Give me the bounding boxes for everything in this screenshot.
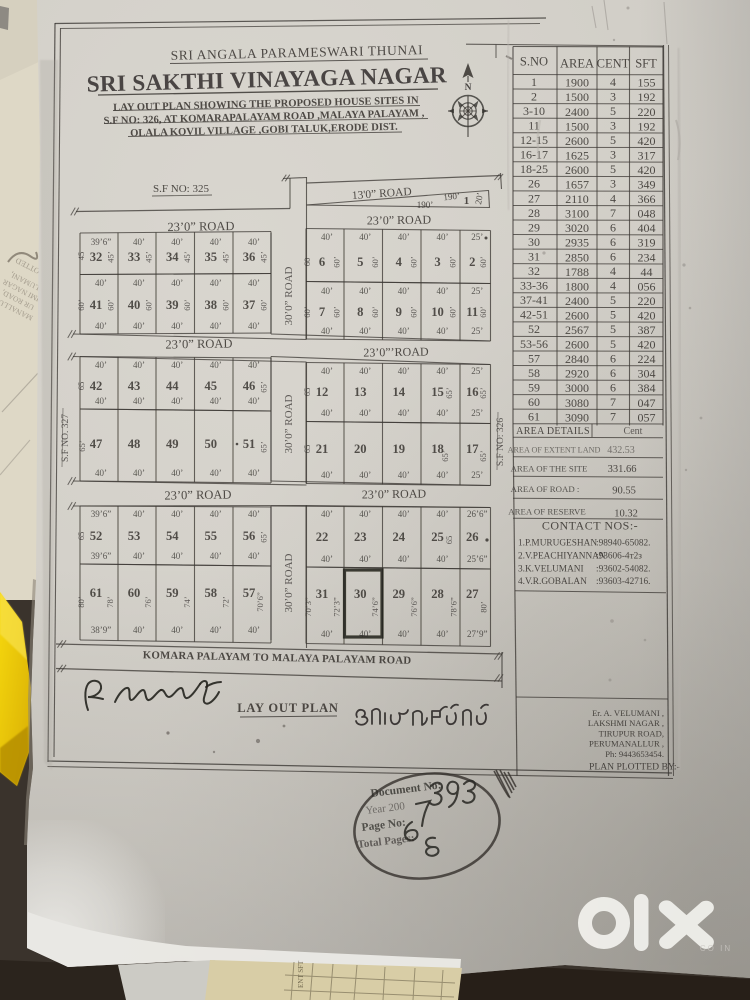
svg-text:2600: 2600 bbox=[565, 134, 589, 148]
svg-text:39’6”: 39’6” bbox=[91, 509, 112, 519]
svg-text:40’: 40’ bbox=[437, 629, 449, 639]
svg-text:60’: 60’ bbox=[409, 306, 419, 318]
svg-text:220: 220 bbox=[638, 105, 656, 119]
svg-text:65’: 65’ bbox=[478, 387, 488, 399]
svg-text:72’: 72’ bbox=[221, 596, 231, 608]
svg-text:27: 27 bbox=[466, 587, 479, 601]
svg-text:2600: 2600 bbox=[565, 338, 589, 352]
svg-text:40’: 40’ bbox=[210, 468, 222, 478]
svg-text:1788: 1788 bbox=[565, 265, 589, 279]
svg-text:304: 304 bbox=[638, 367, 656, 381]
svg-text:40’: 40’ bbox=[321, 554, 333, 564]
svg-text:AREA OF ROAD :: AREA OF ROAD : bbox=[511, 484, 580, 494]
svg-text:65: 65 bbox=[444, 536, 454, 545]
svg-text:4: 4 bbox=[610, 279, 616, 293]
svg-text:319: 319 bbox=[638, 236, 656, 250]
svg-text:1625: 1625 bbox=[565, 148, 589, 162]
svg-text:25’6”: 25’6” bbox=[467, 554, 488, 564]
svg-text:40’: 40’ bbox=[248, 468, 260, 478]
svg-text:5: 5 bbox=[357, 255, 363, 269]
svg-text:34: 34 bbox=[166, 250, 179, 264]
svg-text::98940-65082.: :98940-65082. bbox=[596, 539, 651, 549]
svg-text:420: 420 bbox=[638, 338, 656, 352]
svg-text:38’9”: 38’9” bbox=[91, 625, 112, 635]
svg-text:2.V.PEACHIYANNAN: 2.V.PEACHIYANNAN bbox=[518, 552, 606, 562]
svg-text:65’: 65’ bbox=[77, 440, 87, 452]
svg-text:40’: 40’ bbox=[210, 278, 222, 288]
svg-text:7: 7 bbox=[610, 206, 616, 220]
svg-text:6: 6 bbox=[610, 366, 616, 380]
svg-text:20: 20 bbox=[354, 442, 367, 456]
svg-text:40’: 40’ bbox=[398, 326, 410, 336]
svg-text:60’: 60’ bbox=[332, 306, 342, 318]
svg-text:40’: 40’ bbox=[398, 629, 410, 639]
svg-text:25: 25 bbox=[431, 530, 444, 544]
svg-text:45’: 45’ bbox=[259, 251, 269, 263]
svg-text:11: 11 bbox=[466, 305, 478, 319]
svg-text:2850: 2850 bbox=[565, 250, 589, 264]
svg-text:40’: 40’ bbox=[133, 551, 145, 561]
svg-text:60’: 60’ bbox=[370, 306, 380, 318]
svg-text:1800: 1800 bbox=[565, 279, 589, 293]
svg-text:65’: 65’ bbox=[440, 450, 450, 462]
svg-text:56: 56 bbox=[243, 529, 256, 543]
svg-text:1900: 1900 bbox=[565, 76, 589, 90]
svg-text:60’: 60’ bbox=[478, 306, 488, 318]
svg-text:Cent: Cent bbox=[624, 426, 643, 437]
svg-text:42-51: 42-51 bbox=[520, 308, 548, 322]
svg-text:048: 048 bbox=[638, 207, 656, 221]
svg-text:40’: 40’ bbox=[171, 468, 183, 478]
svg-text:40’: 40’ bbox=[437, 286, 449, 296]
svg-text:76’6”: 76’6” bbox=[409, 597, 419, 617]
svg-text:40’: 40’ bbox=[171, 321, 183, 331]
svg-text:30’0” ROAD: 30’0” ROAD bbox=[283, 266, 295, 325]
svg-text:40’: 40’ bbox=[321, 232, 333, 242]
svg-text:45’: 45’ bbox=[221, 251, 231, 263]
svg-text:331.66: 331.66 bbox=[608, 464, 637, 475]
svg-text:220: 220 bbox=[638, 294, 656, 308]
svg-text:65’: 65’ bbox=[478, 450, 488, 462]
svg-text:23’0” ROAD: 23’0” ROAD bbox=[165, 336, 232, 351]
svg-text:TIRUPUR ROAD,: TIRUPUR ROAD, bbox=[599, 728, 664, 738]
svg-text:5: 5 bbox=[610, 322, 616, 336]
svg-text:70’3”: 70’3” bbox=[303, 597, 313, 617]
svg-text:7: 7 bbox=[610, 410, 616, 424]
svg-text:29: 29 bbox=[528, 220, 540, 234]
svg-text:3-10: 3-10 bbox=[523, 104, 545, 118]
svg-text:190’: 190’ bbox=[443, 191, 460, 203]
svg-text:32: 32 bbox=[528, 264, 540, 278]
svg-text:60’: 60’ bbox=[332, 256, 342, 268]
svg-text:40’: 40’ bbox=[248, 396, 260, 406]
svg-text:40’: 40’ bbox=[359, 232, 371, 242]
svg-text:40’: 40’ bbox=[321, 326, 333, 336]
svg-text:40’: 40’ bbox=[133, 468, 145, 478]
svg-text:3100: 3100 bbox=[565, 207, 589, 221]
svg-text:30: 30 bbox=[354, 587, 367, 601]
svg-text:2600: 2600 bbox=[565, 308, 589, 322]
svg-text:CENT: CENT bbox=[597, 57, 630, 71]
svg-text:47: 47 bbox=[90, 437, 103, 451]
svg-text:234: 234 bbox=[638, 250, 656, 264]
svg-text:1.P.MURUGESHAN: 1.P.MURUGESHAN bbox=[518, 539, 597, 549]
svg-text:74’6”: 74’6” bbox=[370, 597, 380, 617]
svg-text:1: 1 bbox=[464, 195, 470, 207]
svg-text:155: 155 bbox=[638, 76, 656, 90]
svg-text:2920: 2920 bbox=[565, 367, 589, 381]
svg-text:60’: 60’ bbox=[221, 299, 231, 311]
svg-text:23’0” ROAD: 23’0” ROAD bbox=[164, 487, 231, 502]
svg-text:44: 44 bbox=[641, 265, 653, 279]
svg-text:60’: 60’ bbox=[448, 306, 458, 318]
svg-text:25’: 25’ bbox=[471, 232, 483, 242]
svg-text:65: 65 bbox=[76, 382, 86, 391]
svg-text:40’: 40’ bbox=[171, 360, 183, 370]
svg-text:28: 28 bbox=[431, 587, 444, 601]
svg-text:40’: 40’ bbox=[398, 470, 410, 480]
svg-text:384: 384 bbox=[638, 381, 656, 395]
svg-text:29: 29 bbox=[392, 587, 405, 601]
svg-text:40’: 40’ bbox=[248, 321, 260, 331]
svg-text:3: 3 bbox=[610, 89, 616, 103]
svg-text:60: 60 bbox=[128, 586, 141, 600]
svg-text:30’0” ROAD: 30’0” ROAD bbox=[283, 394, 295, 453]
svg-text:60: 60 bbox=[528, 395, 540, 409]
svg-text:3: 3 bbox=[610, 148, 616, 162]
svg-text:40’: 40’ bbox=[133, 321, 145, 331]
svg-text:16: 16 bbox=[466, 385, 479, 399]
svg-text:25’: 25’ bbox=[471, 470, 483, 480]
svg-text:40’: 40’ bbox=[359, 326, 371, 336]
svg-text:Ph: 9443653454.: Ph: 9443653454. bbox=[605, 749, 664, 759]
svg-text:1500: 1500 bbox=[565, 90, 589, 104]
svg-text:366: 366 bbox=[638, 192, 656, 206]
svg-text:50: 50 bbox=[204, 437, 217, 451]
svg-text:40’: 40’ bbox=[171, 551, 183, 561]
svg-text:6: 6 bbox=[319, 255, 325, 269]
svg-text:190’: 190’ bbox=[417, 200, 434, 210]
svg-text:4: 4 bbox=[610, 75, 616, 89]
svg-text:78’6”: 78’6” bbox=[449, 597, 459, 617]
svg-text:57: 57 bbox=[528, 351, 540, 365]
svg-text:40’: 40’ bbox=[171, 237, 183, 247]
svg-text:1657: 1657 bbox=[565, 178, 589, 192]
svg-text:40’: 40’ bbox=[248, 278, 260, 288]
svg-text:40’: 40’ bbox=[133, 237, 145, 247]
svg-text:58: 58 bbox=[204, 586, 217, 600]
svg-text:61: 61 bbox=[528, 410, 540, 424]
svg-text:AREA DETAILS: AREA DETAILS bbox=[516, 426, 590, 437]
svg-text:3000: 3000 bbox=[565, 381, 589, 395]
svg-text:37: 37 bbox=[243, 298, 256, 312]
svg-text:3: 3 bbox=[610, 177, 616, 191]
svg-text:24: 24 bbox=[392, 530, 405, 544]
svg-text:6: 6 bbox=[610, 220, 616, 234]
svg-text:23’0” ROAD: 23’0” ROAD bbox=[362, 486, 427, 501]
svg-text:46: 46 bbox=[243, 379, 256, 393]
svg-text:40’: 40’ bbox=[359, 408, 371, 418]
svg-text:27: 27 bbox=[528, 191, 540, 205]
svg-text:ENT SFT: ENT SFT bbox=[297, 960, 305, 988]
svg-text:192: 192 bbox=[638, 119, 656, 133]
svg-text:76’: 76’ bbox=[143, 596, 153, 608]
svg-text:28: 28 bbox=[528, 206, 540, 220]
svg-text:5: 5 bbox=[610, 337, 616, 351]
svg-text:33-36: 33-36 bbox=[520, 279, 548, 293]
svg-text:74’: 74’ bbox=[182, 596, 192, 608]
svg-text:9: 9 bbox=[396, 305, 402, 319]
svg-text:17: 17 bbox=[466, 442, 479, 456]
svg-text:45’: 45’ bbox=[144, 251, 154, 263]
svg-text:3090: 3090 bbox=[565, 410, 589, 424]
svg-text:3080: 3080 bbox=[565, 396, 589, 410]
svg-text:2110: 2110 bbox=[565, 192, 589, 206]
svg-text:4: 4 bbox=[610, 264, 616, 278]
svg-text:40’: 40’ bbox=[321, 408, 333, 418]
svg-text:5: 5 bbox=[610, 133, 616, 147]
svg-text:387: 387 bbox=[638, 323, 656, 337]
svg-text:40’: 40’ bbox=[398, 509, 410, 519]
svg-text:31: 31 bbox=[316, 587, 329, 601]
svg-text:6: 6 bbox=[610, 351, 616, 365]
svg-text:40’: 40’ bbox=[210, 625, 222, 635]
svg-text:61: 61 bbox=[90, 586, 103, 600]
svg-text:2567: 2567 bbox=[565, 323, 589, 337]
svg-text:317: 317 bbox=[638, 148, 656, 162]
svg-text:78’: 78’ bbox=[105, 596, 115, 608]
svg-text:12: 12 bbox=[316, 385, 329, 399]
svg-text:45: 45 bbox=[76, 252, 86, 261]
svg-text:40’: 40’ bbox=[248, 551, 260, 561]
svg-text:40’: 40’ bbox=[398, 366, 410, 376]
svg-text:2935: 2935 bbox=[565, 236, 589, 250]
svg-text:65’: 65’ bbox=[444, 387, 454, 399]
svg-text:20’: 20’ bbox=[473, 192, 485, 206]
svg-text:40’: 40’ bbox=[359, 470, 371, 480]
svg-text:40’: 40’ bbox=[248, 360, 260, 370]
svg-text:60’: 60’ bbox=[370, 256, 380, 268]
svg-text:40’: 40’ bbox=[321, 629, 333, 639]
svg-text:54: 54 bbox=[166, 529, 179, 543]
svg-text:2: 2 bbox=[469, 255, 475, 269]
svg-text:30’0” ROAD: 30’0” ROAD bbox=[283, 553, 295, 612]
svg-text:40’: 40’ bbox=[133, 396, 145, 406]
svg-text:40’: 40’ bbox=[171, 278, 183, 288]
svg-text:32: 32 bbox=[90, 250, 103, 264]
svg-text:43: 43 bbox=[128, 379, 141, 393]
svg-text:40’: 40’ bbox=[95, 321, 107, 331]
svg-text:40’: 40’ bbox=[321, 470, 333, 480]
svg-text:LAKSHMI NAGAR ,: LAKSHMI NAGAR , bbox=[588, 718, 664, 728]
svg-text:51: 51 bbox=[243, 437, 256, 451]
svg-text::93603-42716.: :93603-42716. bbox=[596, 577, 651, 587]
svg-text:6: 6 bbox=[610, 380, 616, 394]
svg-text:056: 056 bbox=[638, 279, 656, 293]
svg-text:16-17: 16-17 bbox=[520, 148, 548, 162]
svg-text:420: 420 bbox=[638, 308, 656, 322]
svg-text:60’: 60’ bbox=[182, 299, 192, 311]
svg-text:AREA OF EXTENT LAND: AREA OF EXTENT LAND bbox=[508, 446, 601, 455]
svg-text:40’: 40’ bbox=[95, 468, 107, 478]
svg-text:40’: 40’ bbox=[210, 360, 222, 370]
svg-text:40’: 40’ bbox=[398, 232, 410, 242]
svg-text:349: 349 bbox=[638, 178, 656, 192]
svg-text:6: 6 bbox=[610, 235, 616, 249]
svg-text:25’: 25’ bbox=[471, 366, 483, 376]
svg-text:30: 30 bbox=[528, 235, 540, 249]
svg-text:5: 5 bbox=[610, 293, 616, 307]
svg-text:42: 42 bbox=[90, 379, 103, 393]
svg-text:90.55: 90.55 bbox=[612, 486, 636, 497]
svg-text:5: 5 bbox=[610, 162, 616, 176]
svg-text:23’0” ROAD: 23’0” ROAD bbox=[367, 212, 432, 227]
svg-text:12-15: 12-15 bbox=[520, 133, 548, 147]
svg-text:PERUMANALLUR ,: PERUMANALLUR , bbox=[589, 739, 664, 749]
svg-text:1500: 1500 bbox=[565, 119, 589, 133]
svg-text:40’: 40’ bbox=[133, 625, 145, 635]
svg-text:3: 3 bbox=[434, 255, 440, 269]
svg-text:39: 39 bbox=[166, 298, 179, 312]
svg-text:40’: 40’ bbox=[359, 509, 371, 519]
svg-text:40’: 40’ bbox=[437, 554, 449, 564]
svg-text:65’: 65’ bbox=[259, 531, 269, 543]
svg-text:25’: 25’ bbox=[471, 326, 483, 336]
svg-text:65’: 65’ bbox=[259, 381, 269, 393]
svg-text:40’: 40’ bbox=[398, 286, 410, 296]
svg-text:40’: 40’ bbox=[133, 278, 145, 288]
svg-text:LAY OUT PLAN: LAY OUT PLAN bbox=[237, 701, 339, 715]
svg-text:48: 48 bbox=[128, 437, 141, 451]
svg-text:65’: 65’ bbox=[259, 441, 269, 453]
svg-text:40’: 40’ bbox=[95, 360, 107, 370]
svg-text:40’: 40’ bbox=[437, 509, 449, 519]
svg-text:25’: 25’ bbox=[471, 408, 483, 418]
svg-text:60’: 60’ bbox=[76, 299, 86, 311]
svg-text:40’: 40’ bbox=[248, 237, 260, 247]
svg-text:224: 224 bbox=[638, 352, 656, 366]
svg-text:40’: 40’ bbox=[359, 629, 371, 639]
svg-text:CONTACT NOS:-: CONTACT NOS:- bbox=[542, 519, 638, 533]
svg-text:33: 33 bbox=[128, 250, 141, 264]
svg-text:40’: 40’ bbox=[133, 509, 145, 519]
svg-text:59: 59 bbox=[166, 586, 179, 600]
svg-text:40’: 40’ bbox=[437, 326, 449, 336]
svg-text:40’: 40’ bbox=[398, 554, 410, 564]
svg-text:N: N bbox=[465, 83, 472, 93]
svg-text:53: 53 bbox=[128, 529, 141, 543]
svg-text:60’: 60’ bbox=[409, 256, 419, 268]
svg-text:40’: 40’ bbox=[398, 408, 410, 418]
svg-text:057: 057 bbox=[638, 410, 656, 424]
svg-text:26: 26 bbox=[528, 177, 540, 191]
svg-text:26’6”: 26’6” bbox=[467, 509, 488, 519]
svg-text:2400: 2400 bbox=[565, 105, 589, 119]
svg-text:AREA OF RESERVE: AREA OF RESERVE bbox=[508, 507, 586, 517]
svg-text:40: 40 bbox=[128, 298, 141, 312]
svg-text:13: 13 bbox=[354, 385, 367, 399]
svg-text:3: 3 bbox=[610, 119, 616, 133]
svg-text:40’: 40’ bbox=[359, 554, 371, 564]
svg-text:40’: 40’ bbox=[210, 509, 222, 519]
svg-text:10: 10 bbox=[431, 305, 444, 319]
svg-text:40’: 40’ bbox=[321, 366, 333, 376]
svg-text:2600: 2600 bbox=[565, 163, 589, 177]
svg-text:52: 52 bbox=[528, 322, 540, 336]
svg-text:59: 59 bbox=[528, 380, 540, 394]
svg-text:40’: 40’ bbox=[210, 321, 222, 331]
svg-text:36: 36 bbox=[243, 250, 256, 264]
svg-text:Er. A. VELUMANI ,: Er. A. VELUMANI , bbox=[592, 708, 664, 718]
svg-text:40’: 40’ bbox=[321, 509, 333, 519]
svg-text:40’: 40’ bbox=[171, 625, 183, 635]
svg-text:53-56: 53-56 bbox=[520, 337, 548, 351]
svg-text:41: 41 bbox=[90, 298, 103, 312]
svg-text:39’6”: 39’6” bbox=[91, 237, 112, 247]
svg-text:40’: 40’ bbox=[359, 366, 371, 376]
svg-text:40’: 40’ bbox=[321, 286, 333, 296]
svg-text:AREA: AREA bbox=[560, 57, 594, 71]
svg-text:7: 7 bbox=[610, 395, 616, 409]
svg-text:60’: 60’ bbox=[106, 299, 116, 311]
svg-text:192: 192 bbox=[638, 90, 656, 104]
svg-text:38: 38 bbox=[204, 298, 217, 312]
svg-text:5: 5 bbox=[610, 104, 616, 118]
svg-text:52: 52 bbox=[90, 529, 103, 543]
svg-text:4.V.R.GOBALAN: 4.V.R.GOBALAN bbox=[518, 577, 587, 587]
svg-text:40’: 40’ bbox=[171, 396, 183, 406]
svg-text:40’: 40’ bbox=[437, 470, 449, 480]
svg-text:8: 8 bbox=[357, 305, 363, 319]
svg-text:58: 58 bbox=[528, 366, 540, 380]
svg-text:047: 047 bbox=[638, 396, 656, 410]
svg-text:39’6”: 39’6” bbox=[91, 551, 112, 561]
svg-text:80’: 80’ bbox=[479, 601, 489, 613]
svg-text:S.NO: S.NO bbox=[520, 55, 548, 69]
svg-text:22: 22 bbox=[316, 530, 329, 544]
svg-text:SFT: SFT bbox=[635, 57, 657, 71]
svg-text:40’: 40’ bbox=[437, 366, 449, 376]
svg-text:72’3”: 72’3” bbox=[332, 597, 342, 617]
svg-text:3.K.VELUMANI: 3.K.VELUMANI bbox=[518, 564, 584, 574]
svg-text:40’: 40’ bbox=[210, 551, 222, 561]
svg-text:420: 420 bbox=[638, 134, 656, 148]
svg-text:40’: 40’ bbox=[437, 232, 449, 242]
svg-text:40’: 40’ bbox=[210, 396, 222, 406]
svg-text:18-25: 18-25 bbox=[520, 162, 548, 176]
svg-text:35: 35 bbox=[204, 250, 217, 264]
svg-text:19: 19 bbox=[392, 442, 405, 456]
svg-text:40’: 40’ bbox=[210, 237, 222, 247]
svg-text:27’9”: 27’9” bbox=[467, 629, 488, 639]
svg-text:420: 420 bbox=[638, 163, 656, 177]
svg-text:21: 21 bbox=[316, 442, 329, 456]
svg-text:40’: 40’ bbox=[437, 408, 449, 418]
svg-text:23’0”’ROAD: 23’0”’ROAD bbox=[363, 344, 429, 359]
svg-text:3020: 3020 bbox=[565, 221, 589, 235]
svg-text:55: 55 bbox=[204, 529, 217, 543]
svg-text:49: 49 bbox=[166, 437, 179, 451]
svg-text:CO IN: CO IN bbox=[700, 944, 732, 953]
svg-text:6: 6 bbox=[610, 249, 616, 263]
svg-text:14: 14 bbox=[392, 385, 405, 399]
svg-text:23: 23 bbox=[354, 530, 367, 544]
svg-text:PLAN PLOTTED BY:-: PLAN PLOTTED BY:- bbox=[589, 762, 680, 773]
svg-text:44: 44 bbox=[166, 379, 179, 393]
svg-text:40’: 40’ bbox=[133, 360, 145, 370]
svg-text:40’: 40’ bbox=[248, 509, 260, 519]
svg-text:45’: 45’ bbox=[106, 251, 116, 263]
